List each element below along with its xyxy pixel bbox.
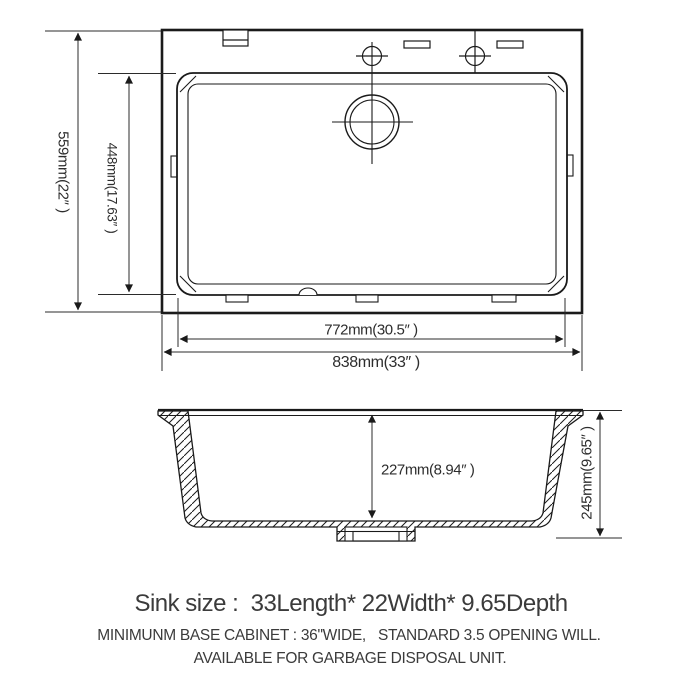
dim-559-label: 559mm(22″ ) bbox=[55, 131, 72, 213]
top-view bbox=[162, 30, 582, 313]
disposal-note: AVAILABLE FOR GARBAGE DISPOSAL UNIT. bbox=[194, 650, 507, 668]
dim-772-label: 772mm(30.5″ ) bbox=[324, 322, 417, 339]
bottom-tabs bbox=[226, 295, 516, 302]
drain-fitting bbox=[337, 527, 415, 541]
drain-opening bbox=[332, 42, 413, 164]
faucet-hole-2 bbox=[459, 31, 491, 73]
cabinet-note: MINIMUNM BASE CABINET : 36"WIDE, STANDAR… bbox=[97, 627, 600, 645]
side-view bbox=[158, 410, 583, 541]
deck-slot-1 bbox=[404, 41, 430, 48]
section-body bbox=[158, 411, 583, 541]
overflow-bump bbox=[299, 288, 317, 295]
dim-245-label: 245mm(9.65″ ) bbox=[579, 426, 596, 519]
top-view-dimensions bbox=[45, 31, 582, 371]
sink-size-title: Sink size : 33Length* 22Width* 9.65Depth bbox=[134, 590, 567, 618]
deck-notch bbox=[223, 30, 248, 46]
deck-slot-2 bbox=[497, 41, 523, 48]
sink-spec-diagram: 559mm(22″ ) 448mm(17.63″ ) 772mm(30.5″ )… bbox=[0, 0, 700, 700]
dim-838-label: 838mm(33″ ) bbox=[332, 354, 420, 372]
dim-448-label: 448mm(17.63″ ) bbox=[105, 143, 120, 234]
dim-227-label: 227mm(8.94″ ) bbox=[381, 462, 474, 479]
